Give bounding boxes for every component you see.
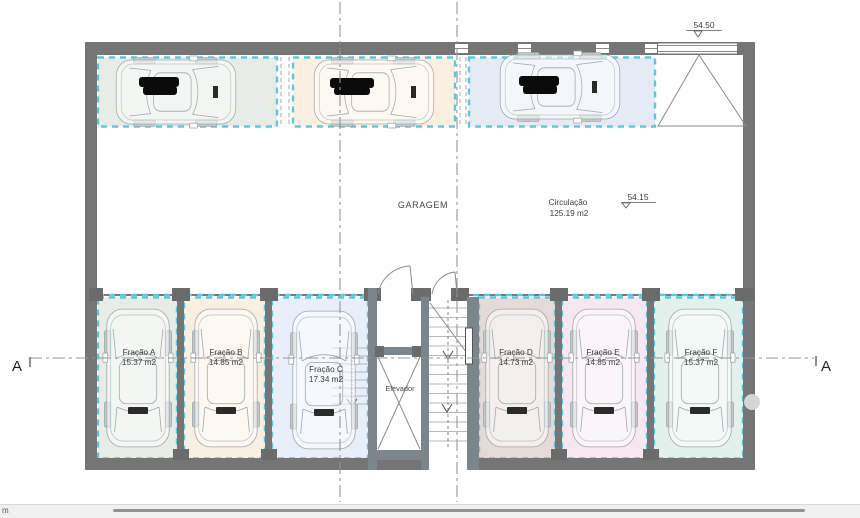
floor-plan-svg: 54.50 54.15 GARAGEM Circulação 125.19 m2…: [0, 0, 860, 518]
section-marker-right: A: [821, 358, 831, 375]
car-fracao-e: [569, 309, 639, 447]
core-wall-left: [368, 288, 377, 470]
ramp-triangle: [658, 55, 746, 126]
fracao-b-area: 14.85 m2: [209, 358, 244, 367]
core-wall-right: [467, 297, 479, 470]
garagem-label: GARAGEM: [398, 200, 448, 210]
level-triangle-icon: [694, 31, 702, 37]
fracao-a-name: Fração A: [123, 348, 156, 357]
wall-divider-ab: [177, 297, 184, 458]
stair-arrow-down-icon: [442, 404, 452, 412]
viewer-status-bar: m: [0, 504, 860, 518]
elevator-label: Elevador: [385, 384, 415, 393]
car-fracao-f: [665, 309, 735, 447]
elevator-bottom-wall: [368, 450, 429, 460]
fracao-b-name: Fração B: [209, 348, 243, 357]
plan-viewer: 54.50 54.15 GARAGEM Circulação 125.19 m2…: [0, 0, 860, 518]
car-fracao-a: [103, 309, 173, 447]
circulacao-area: 125.19 m2: [550, 209, 589, 218]
fracao-a-area: 15.37 m2: [122, 358, 157, 367]
elevator-shaft: [378, 357, 420, 449]
garage-door-opening: [658, 44, 737, 54]
core-wall-mid: [421, 297, 429, 470]
level-triangle-icon: [622, 203, 630, 208]
fracao-f-name: Fração F: [685, 348, 718, 357]
wall-left: [85, 55, 97, 470]
stairs: [429, 300, 473, 450]
fracao-c-area: 17.34 m2: [309, 375, 344, 384]
stair-door: [466, 328, 473, 364]
fracao-e-name: Fração E: [586, 348, 620, 357]
wall-divider-bc: [265, 297, 272, 458]
level-marker-ramp: 54.50: [686, 20, 722, 37]
circulacao-label: Circulação: [549, 198, 588, 207]
car-fracao-b: [191, 309, 261, 447]
level-value: 54.50: [694, 20, 715, 30]
door-swing-icon: [378, 266, 413, 294]
car-fracao-d: [482, 309, 552, 447]
unit-label: m: [2, 506, 9, 515]
wall-column-circle: [744, 394, 760, 410]
wall-divider-de: [555, 297, 562, 458]
car-top-3: [500, 51, 620, 123]
level-marker-floor: 54.15: [621, 192, 656, 208]
fracao-f-area: 15.37 m2: [684, 358, 719, 367]
fracao-c-name: Fração C: [309, 365, 343, 374]
wall-bottom-right: [479, 458, 743, 470]
wall-divider-ef: [647, 297, 654, 458]
fracao-e-area: 14.85 m2: [586, 358, 621, 367]
fracao-d-name: Fração D: [499, 348, 533, 357]
section-marker-left: A: [12, 358, 22, 375]
level-value: 54.15: [628, 192, 649, 202]
fracao-d-area: 14.73 m2: [499, 358, 534, 367]
horizontal-scrollbar-thumb[interactable]: [113, 509, 805, 512]
